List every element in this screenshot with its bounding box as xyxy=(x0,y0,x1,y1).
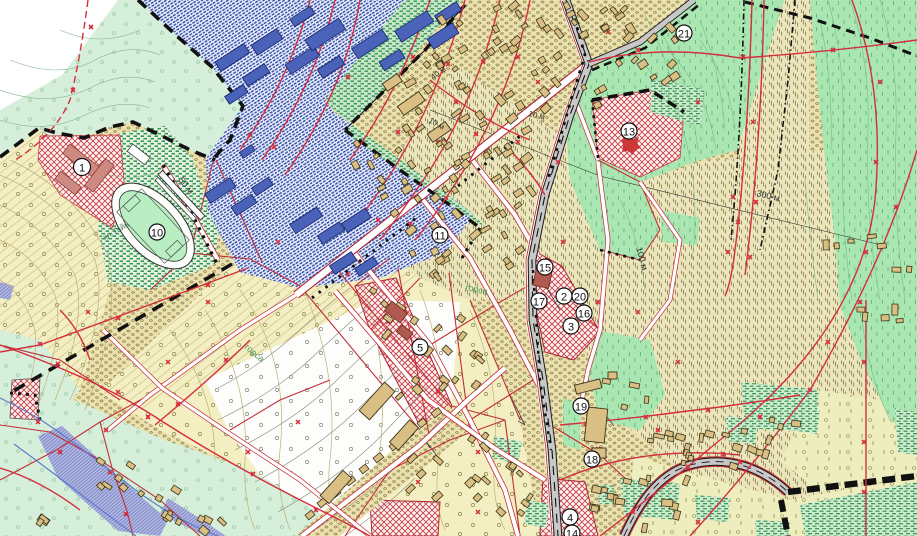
svg-text:13: 13 xyxy=(623,127,635,139)
svg-text:11: 11 xyxy=(434,231,445,243)
svg-text:15: 15 xyxy=(539,263,551,275)
svg-text:4: 4 xyxy=(567,513,573,525)
svg-text:5: 5 xyxy=(417,343,423,355)
svg-text:20: 20 xyxy=(574,292,586,304)
svg-text:14: 14 xyxy=(566,529,578,536)
svg-text:16: 16 xyxy=(578,309,590,321)
svg-text:3: 3 xyxy=(568,322,574,334)
svg-text:2: 2 xyxy=(561,292,567,304)
svg-text:18: 18 xyxy=(586,455,598,467)
svg-text:1: 1 xyxy=(79,163,85,175)
svg-text:10: 10 xyxy=(151,228,163,240)
svg-text:21: 21 xyxy=(678,29,690,41)
svg-text:17: 17 xyxy=(533,297,545,309)
svg-text:19: 19 xyxy=(575,402,587,414)
